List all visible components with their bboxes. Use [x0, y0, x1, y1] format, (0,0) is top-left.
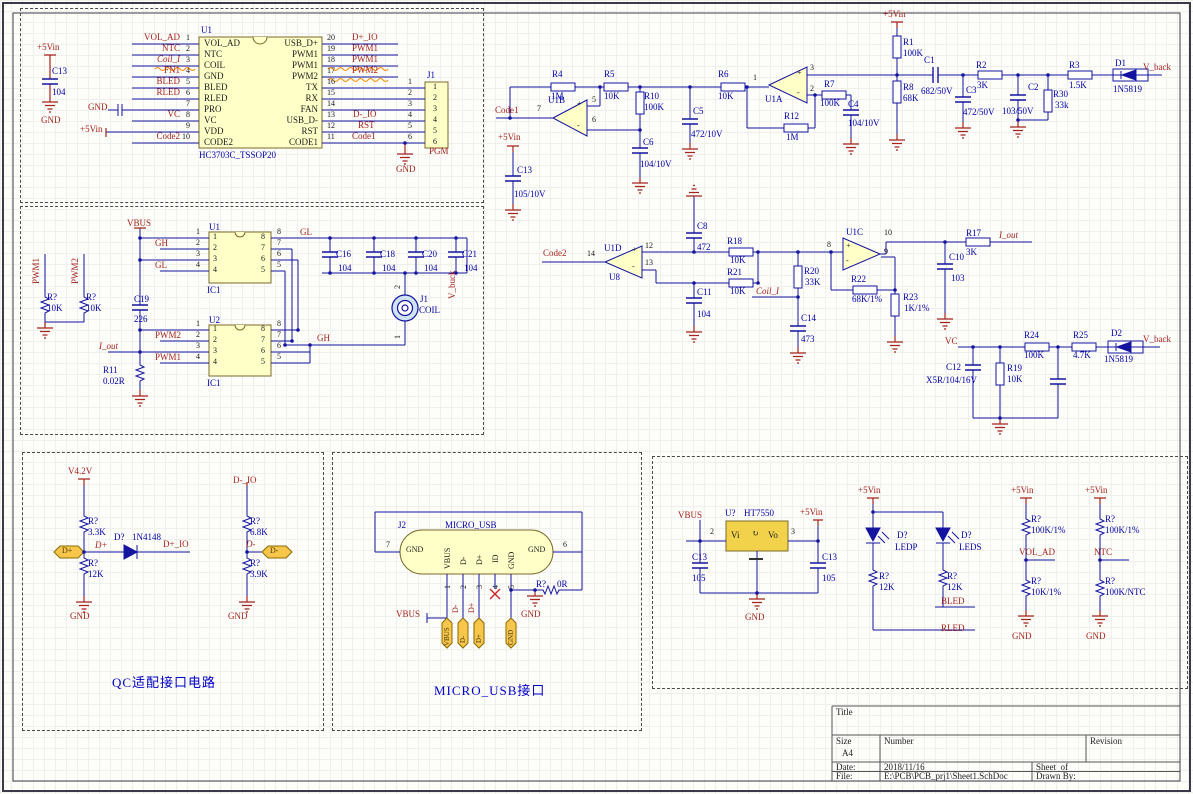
- res-ref: R17: [966, 229, 981, 238]
- res-ref: R?: [88, 559, 98, 568]
- pin-number: 7: [386, 541, 390, 549]
- pin-number: 3: [213, 255, 217, 263]
- power-port-label: +5Vin: [1011, 486, 1034, 495]
- res-ref: R4: [552, 70, 563, 79]
- res-value: 10K: [47, 304, 63, 313]
- cap-ref: C18: [380, 250, 395, 259]
- cap-value: 104: [464, 264, 478, 273]
- pin-name: Vo: [768, 531, 778, 540]
- power-port-label: +5Vin: [800, 508, 823, 517]
- led-name: LEDS: [959, 543, 982, 552]
- pin-name: GND: [528, 546, 545, 554]
- net-label: PWM1: [155, 353, 181, 362]
- pin-name: D+: [476, 555, 484, 565]
- connector-name: PGM: [429, 147, 449, 156]
- connector-name: MICRO_USB: [445, 521, 497, 530]
- res-ref: R?: [879, 572, 889, 581]
- pin-number: 5: [592, 96, 596, 104]
- pin-number: 6: [592, 116, 596, 124]
- titleblock-number-label: Number: [884, 737, 914, 746]
- pin-name: COIL: [204, 61, 225, 70]
- net-label: V_buck: [448, 271, 457, 300]
- cap-ref: C19: [134, 295, 149, 304]
- res-value: 100K: [644, 103, 664, 112]
- net-label: Code1: [352, 132, 376, 141]
- res-ref: R?: [250, 559, 260, 568]
- port-label: GND: [508, 630, 515, 645]
- pin-number: 3: [408, 100, 412, 108]
- res-ref: R11: [103, 366, 118, 375]
- res-value: 100K/NTC: [1105, 588, 1146, 597]
- net-label: FN1: [164, 66, 180, 75]
- gnd-label: GND: [70, 612, 90, 621]
- res-value: 12K: [947, 583, 963, 592]
- gnd-label: GND: [1086, 632, 1106, 641]
- pin-number: 3: [196, 250, 200, 258]
- pin-number: 2: [433, 94, 437, 102]
- ic-ref: U1: [209, 223, 220, 232]
- pin-number: 8: [277, 320, 281, 328]
- res-value: 12K: [879, 583, 895, 592]
- net-label: RLED: [941, 624, 965, 633]
- net-label: NTC: [162, 44, 180, 53]
- pin-number: 7: [537, 105, 541, 113]
- net-label: I_out: [99, 342, 118, 351]
- res-ref: R19: [1007, 364, 1022, 373]
- opamp-ref: U8: [609, 273, 620, 282]
- pin-number: 4: [213, 358, 217, 366]
- net-label: PWM1: [352, 44, 378, 53]
- power-port-label: +5Vin: [498, 133, 521, 142]
- pin-number: 13: [327, 111, 335, 119]
- res-ref: R?: [1105, 515, 1115, 524]
- pin-number: 2: [196, 239, 200, 247]
- pin-number: 6: [408, 133, 412, 141]
- titleblock-file-value: E:\PCB\PCB_prj1\Sheet1.SchDoc: [884, 772, 1008, 781]
- res-ref: R12: [784, 112, 799, 121]
- pin-number: 6: [261, 255, 265, 263]
- net-label: I_out: [999, 231, 1018, 240]
- titleblock-revision-label: Revision: [1090, 737, 1122, 746]
- res-ref: R5: [604, 70, 615, 79]
- gnd-label: GND: [396, 165, 416, 174]
- pin-name: FAN: [301, 105, 318, 114]
- pin-number: 2: [213, 244, 217, 252]
- res-value: 10K: [86, 304, 102, 313]
- net-label: GL: [155, 261, 167, 270]
- res-ref: R22: [851, 275, 866, 284]
- res-value: 1K/1%: [904, 304, 930, 313]
- pin-number: 5: [186, 78, 190, 86]
- net-label: VC: [167, 110, 180, 119]
- connector-ref: J1: [427, 71, 435, 80]
- cap-value: 104: [424, 264, 438, 273]
- cap-ref: C11: [697, 288, 712, 297]
- net-label: VBUS: [127, 219, 151, 228]
- gnd-label: GND: [228, 612, 248, 621]
- cap-value: 104: [382, 264, 396, 273]
- titleblock-title-label: Title: [836, 708, 853, 717]
- connector-ref: J1: [420, 295, 428, 304]
- res-ref: R21: [727, 268, 742, 277]
- cap-value: 104: [338, 264, 352, 273]
- net-label: D-: [246, 540, 256, 549]
- cap-value: 103/50V: [1002, 107, 1034, 116]
- diode-part: 1N5819: [1104, 355, 1133, 364]
- pin-number: 1: [753, 74, 757, 82]
- pin-number: 8: [261, 233, 265, 241]
- cap-value: 472: [697, 243, 711, 252]
- titleblock-drawnby-label: Drawn By:: [1036, 772, 1076, 781]
- pin-number: 3: [810, 64, 814, 72]
- port-label: D-: [460, 636, 467, 643]
- pin-number: 3: [186, 56, 190, 64]
- pin-number: 4: [196, 353, 200, 361]
- net-label: Coil_I: [756, 287, 779, 296]
- pin-name: GND: [406, 546, 423, 554]
- section-title: QC适配接口电路: [112, 676, 216, 689]
- pin-name: VOL_AD: [204, 39, 240, 48]
- net-label: RLED: [157, 88, 181, 97]
- res-ref: R24: [1024, 331, 1039, 340]
- res-value: 12K: [88, 570, 104, 579]
- net-label: Code1: [495, 106, 519, 115]
- res-value: 68K/1%: [852, 295, 882, 304]
- gnd-label: GND: [521, 610, 541, 619]
- opamp-ref: U1A: [765, 95, 783, 104]
- res-ref: R3: [1069, 61, 1080, 70]
- pin-number: 4: [408, 111, 412, 119]
- res-value: 100K/1%: [1105, 526, 1140, 535]
- opamp-minus: -: [797, 89, 800, 97]
- cap-value: 472/50V: [963, 108, 995, 117]
- res-ref: R?: [47, 293, 57, 302]
- pin-number: 10: [182, 133, 190, 141]
- pin-number: 2: [710, 528, 714, 536]
- net-label: VC: [945, 337, 958, 346]
- pin-name: ID: [492, 555, 500, 563]
- pin-name: RX: [305, 94, 318, 103]
- res-value: 100K: [820, 99, 840, 108]
- pin-number: 3: [791, 528, 795, 536]
- net-label: D+_IO: [163, 540, 189, 549]
- port-label: D-: [270, 547, 278, 555]
- res-value: 100K/1%: [1031, 526, 1066, 535]
- pin-number: 2: [810, 85, 814, 93]
- pin-number: 3: [433, 105, 437, 113]
- gnd-label: GND: [41, 116, 61, 125]
- opamp-plus: +: [632, 246, 637, 254]
- diode-ref: D1: [1115, 59, 1126, 68]
- cap-ref: C1: [924, 56, 935, 65]
- pin-number: 3: [213, 347, 217, 355]
- cap-ref: C5: [693, 107, 704, 116]
- res-value: 4.7K: [1073, 351, 1091, 360]
- pin-name: CODE2: [204, 138, 233, 147]
- opamp-ref: U1C: [846, 228, 863, 237]
- cap-ref: C12: [946, 363, 961, 372]
- pin-number: 1: [433, 83, 437, 91]
- pin-number: 2: [460, 585, 468, 589]
- cap-ref: C13: [517, 166, 532, 175]
- pin-number: 1: [213, 233, 217, 241]
- pin-name: USB_D-: [286, 116, 318, 125]
- cap-ref: C4: [848, 100, 859, 109]
- pin-number: 18: [327, 56, 335, 64]
- pin-name: TX: [306, 83, 318, 92]
- net-label: NTC: [1094, 548, 1112, 557]
- opamp-minus: -: [846, 257, 849, 265]
- cap-ref: C2: [1028, 83, 1039, 92]
- res-ref: R7: [824, 80, 835, 89]
- pin-number: 7: [186, 100, 190, 108]
- power-port-label: V4.2V: [68, 467, 92, 476]
- res-ref: R1: [903, 38, 914, 47]
- pin-number: 19: [327, 45, 335, 53]
- pin-number: 4: [186, 67, 190, 75]
- ic-part: HT7550: [744, 509, 774, 518]
- pin-name: D-: [460, 557, 468, 565]
- pin-number: 3: [196, 342, 200, 350]
- cap-ref: C13: [692, 553, 707, 562]
- net-label: PWM1: [32, 258, 41, 284]
- diode-ref: D2: [1111, 329, 1122, 338]
- res-value: 33K: [805, 278, 821, 287]
- power-port-label: +5Vin: [80, 125, 103, 134]
- res-ref: R18: [727, 237, 742, 246]
- net-label: PWM2: [71, 258, 80, 284]
- diode-part: 1N5819: [1113, 85, 1142, 94]
- cap-value: 104: [697, 310, 711, 319]
- cap-ref: C8: [697, 222, 708, 231]
- pin-number: 1: [186, 34, 190, 42]
- net-label: RST: [358, 121, 375, 130]
- pin-name: Vi: [731, 531, 739, 540]
- pin-number: 1: [196, 320, 200, 328]
- pin-name: VDD: [204, 127, 224, 136]
- gnd-label: GND: [745, 613, 765, 622]
- cap-ref: C6: [643, 138, 654, 147]
- pin-name: NTC: [204, 50, 222, 59]
- power-port-label: +5Vin: [858, 486, 881, 495]
- pin-number: 20: [327, 34, 335, 42]
- pin-name: USB_D+: [284, 39, 318, 48]
- res-value: 10K: [718, 92, 734, 101]
- net-label: GH: [317, 334, 330, 343]
- titleblock-file-label: File:: [836, 772, 853, 781]
- cap-ref: C14: [801, 314, 816, 323]
- regulator-gnd-icon: ↻: [752, 530, 759, 538]
- opamp-plus: +: [797, 69, 802, 77]
- res-ref: R?: [1031, 577, 1041, 586]
- section-box-driver: [20, 206, 484, 435]
- res-ref: R2: [976, 61, 987, 70]
- net-label: Code2: [543, 249, 567, 258]
- res-value: 0R: [557, 580, 568, 589]
- led-ref: D?: [897, 531, 908, 540]
- res-ref: R?: [1031, 515, 1041, 524]
- res-value: 10K: [730, 287, 746, 296]
- pin-name: PWM1: [292, 50, 318, 59]
- pin-number: 6: [433, 138, 437, 146]
- cap-ref: C3: [966, 86, 977, 95]
- res-ref: R?: [536, 580, 546, 589]
- pin-number: 6: [277, 342, 281, 350]
- net-label: PWM2: [155, 331, 181, 340]
- pin-number: 8: [186, 111, 190, 119]
- res-value: 3.3K: [88, 528, 106, 537]
- net-label: Code2: [157, 132, 181, 141]
- led-ref: D?: [961, 531, 972, 540]
- ic-part: IC1: [207, 286, 221, 295]
- pin-number: 2: [394, 285, 402, 289]
- res-ref: R20: [804, 267, 819, 276]
- pin-number: 4: [213, 266, 217, 274]
- opamp-minus: -: [577, 122, 580, 130]
- pin-number: 8: [277, 228, 281, 236]
- pin-number: 10: [884, 229, 892, 237]
- schematic-sheet: +5VinC13104GNDU1HC3703C_TSSOP20VOL_ADNTC…: [0, 0, 1193, 794]
- power-port-label: +5Vin: [1085, 486, 1108, 495]
- res-value: 68K: [903, 94, 919, 103]
- pin-number: 7: [261, 244, 265, 252]
- ic-part: HC3703C_TSSOP20: [199, 151, 276, 160]
- net-label: GH: [155, 239, 168, 248]
- inverted-gnd-symbol: [686, 186, 702, 197]
- net-label: V_back: [1143, 63, 1171, 72]
- pin-number: 7: [277, 331, 281, 339]
- diode-ref: D?: [114, 533, 125, 542]
- pin-number: 3: [476, 585, 484, 589]
- res-ref: R?: [88, 517, 98, 526]
- cap-value: 472/10V: [691, 130, 723, 139]
- res-value: 10K/1%: [1031, 588, 1061, 597]
- net-label: PWM2: [352, 66, 378, 75]
- net-label: D+: [95, 541, 108, 550]
- res-value: 0.02R: [103, 377, 125, 386]
- cap-ref: C21: [462, 250, 477, 259]
- pin-number: 5: [433, 127, 437, 135]
- power-port-label: +5Vin: [37, 43, 60, 52]
- res-value: 3K: [977, 81, 988, 90]
- titleblock-size-value: A4: [842, 749, 853, 758]
- port-label: VBUS: [444, 627, 451, 646]
- pin-number: 2: [408, 89, 412, 97]
- port-label: D+: [476, 634, 483, 643]
- pin-name: RLED: [204, 94, 228, 103]
- pin-number: 1: [408, 78, 412, 86]
- pin-number: 6: [563, 541, 567, 549]
- cap-value: 104/10V: [848, 119, 880, 128]
- pin-number: 9: [884, 248, 888, 256]
- pin-number: 2: [186, 45, 190, 53]
- res-ref: R30: [1053, 90, 1068, 99]
- pin-number: 2: [196, 331, 200, 339]
- res-ref: R23: [903, 293, 918, 302]
- pin-name: VC: [204, 116, 217, 125]
- pin-name: BLED: [204, 83, 228, 92]
- net-label: BLED: [157, 77, 181, 86]
- pin-number: 7: [261, 336, 265, 344]
- pin-number: 1: [394, 335, 402, 339]
- gnd-label: GND: [88, 103, 108, 112]
- pin-number: 5: [508, 585, 516, 589]
- pin-number: 12: [327, 122, 335, 130]
- net-label: BLED: [941, 597, 965, 606]
- cap-value: X5R/104/16V: [926, 376, 977, 385]
- net-label: GL: [300, 228, 312, 237]
- net-label: V_back: [1143, 335, 1171, 344]
- cap-value: 682/50V: [921, 87, 953, 96]
- res-ref: R?: [250, 517, 260, 526]
- pin-number: 17: [327, 67, 335, 75]
- pin-number: 2: [213, 336, 217, 344]
- diode-part: 1N4148: [132, 533, 161, 542]
- pin-number: 7: [277, 239, 281, 247]
- cap-value: 104: [52, 88, 66, 97]
- pin-name: PWM2: [292, 72, 318, 81]
- power-port-label: +5Vin: [883, 10, 906, 19]
- res-ref: R10: [644, 92, 659, 101]
- pin-number: 5: [408, 122, 412, 130]
- res-value: 6.8K: [250, 528, 268, 537]
- capacitor-c1: [933, 67, 938, 83]
- res-value: 1M: [786, 133, 799, 142]
- cap-ref: C16: [336, 250, 351, 259]
- pin-number: 1: [196, 228, 200, 236]
- res-ref: R25: [1073, 331, 1088, 340]
- res-ref: R?: [86, 293, 96, 302]
- res-value: 10K: [730, 256, 746, 265]
- pin-number: 13: [645, 259, 653, 267]
- pin-name: PWM1: [292, 61, 318, 70]
- pin-number: 14: [587, 250, 595, 258]
- net-label: VBUS: [396, 610, 420, 619]
- net-label: D-_IO: [233, 476, 257, 485]
- pin-number: 1: [444, 585, 452, 589]
- pin-number: 14: [327, 100, 335, 108]
- cap-ref: C10: [949, 253, 964, 262]
- net-label: VOL_AD: [1019, 548, 1055, 557]
- pin-number: 6: [186, 89, 190, 97]
- cap-ref: C13: [822, 553, 837, 562]
- net-label: VOL_AD: [144, 33, 180, 42]
- opamp-plus: +: [577, 100, 582, 108]
- pin-number: 16: [327, 78, 335, 86]
- res-value: 3.9K: [250, 570, 268, 579]
- opamp-ref: U1D: [604, 244, 622, 253]
- res-value: 100K: [903, 49, 923, 58]
- pin-number: 11: [327, 133, 335, 141]
- port-label: D+: [62, 547, 72, 555]
- pin-number: 6: [261, 347, 265, 355]
- res-value: 10K: [604, 92, 620, 101]
- cap-ref: C20: [422, 250, 437, 259]
- pin-number: 9: [186, 122, 190, 130]
- pin-number: 8: [827, 241, 831, 249]
- net-label: D-_IO: [353, 110, 377, 119]
- ic-part: IC1: [207, 379, 221, 388]
- res-ref: R6: [718, 70, 729, 79]
- pin-number: 5: [277, 261, 281, 269]
- pin-number: 15: [327, 89, 335, 97]
- cap-value: 105: [692, 574, 706, 583]
- ic-ref: U1: [201, 26, 212, 35]
- res-ref: R?: [947, 572, 957, 581]
- net-label: D-: [452, 605, 460, 613]
- res-value: 3K: [966, 248, 977, 257]
- pin-name: GND: [508, 552, 516, 569]
